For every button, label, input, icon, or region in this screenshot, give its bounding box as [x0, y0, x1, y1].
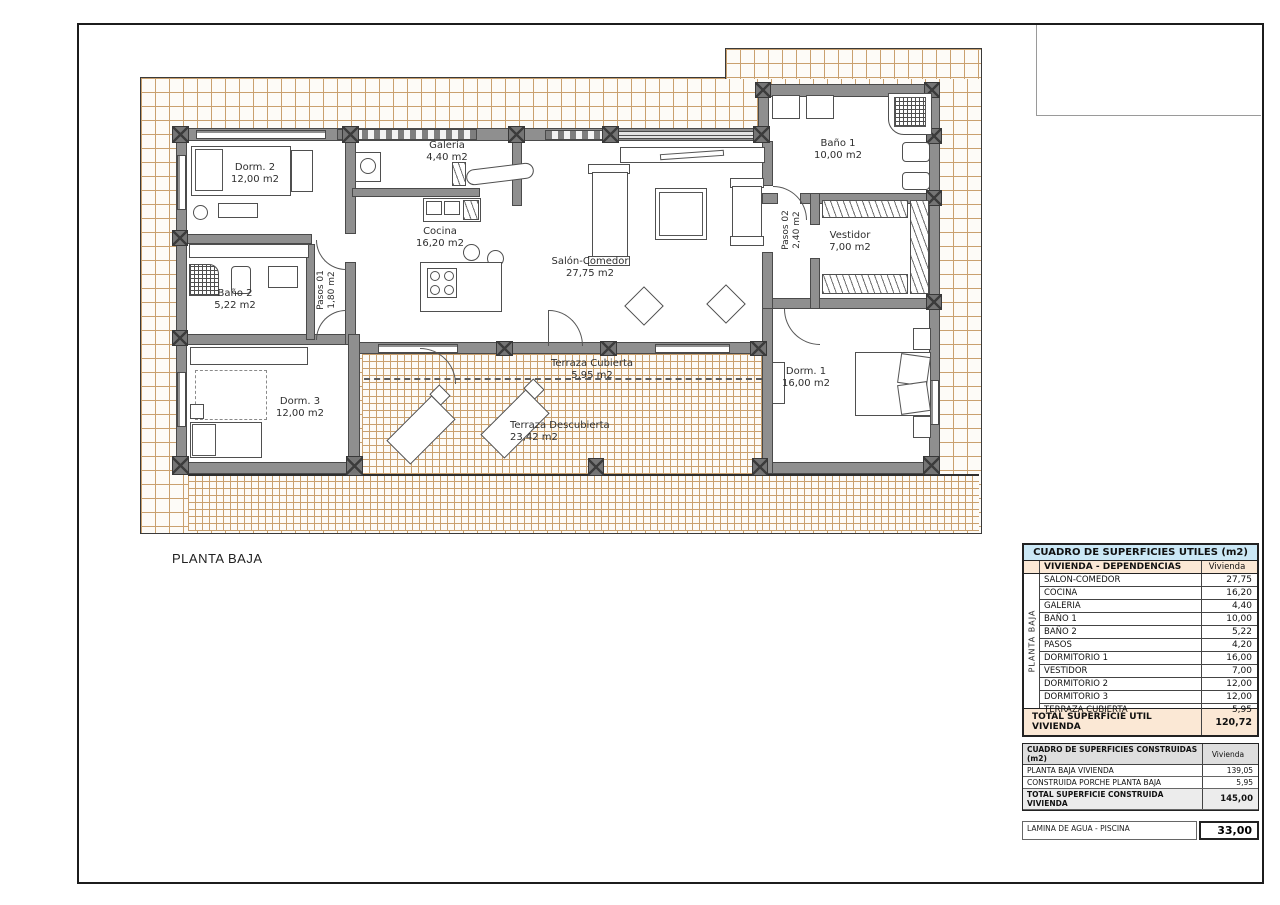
piscina-label: LAMINA DE AGUA - PISCINA [1022, 821, 1197, 840]
row-value: 16,20 [1201, 587, 1257, 599]
row-label: VESTIDOR [1040, 665, 1201, 677]
room-area: 23,42 m2 [510, 432, 558, 443]
room-name: Salón-Comedor [552, 256, 629, 267]
banyo2-counter [189, 244, 309, 258]
room-area: 5,22 m2 [214, 300, 256, 311]
dorm1-pillow [898, 382, 930, 414]
table-row: PASOS4,20 [1040, 639, 1257, 652]
pillar [600, 341, 617, 356]
table-row: CONSTRUIDA PORCHE PLANTA BAJA5,95 [1023, 777, 1258, 789]
room-name: Galería [429, 140, 465, 151]
plot-grid-step [725, 48, 982, 79]
dorm3-wardrobe [190, 347, 308, 365]
group-strip: PLANTA BAJA [1024, 574, 1040, 708]
room-name: Pasos 02 [781, 210, 791, 250]
surface-tables: CUADRO DE SUPERFICIES UTILES (m2) VIVIEN… [1022, 543, 1259, 840]
pillar [508, 126, 525, 143]
table-superficies-construidas: CUADRO DE SUPERFICIES CONSTRUIDAS (m2) V… [1022, 743, 1259, 811]
armchair [732, 186, 762, 238]
room-area: 5,95 m2 [571, 370, 613, 381]
wall [345, 262, 356, 345]
room-label-banyo2: Baño 2 5,22 m2 [185, 288, 285, 312]
row-value: 7,00 [1201, 665, 1257, 677]
kitchen-sink-bowl [444, 201, 460, 215]
table-row: PLANTA BAJA VIVIENDA139,05 [1023, 765, 1258, 777]
table-utiles-body: PLANTA BAJA SALON-COMEDOR27,75 COCINA16,… [1024, 574, 1257, 709]
room-label-dorm2: Dorm. 2 12,00 m2 [205, 162, 305, 186]
table-row: VESTIDOR7,00 [1040, 665, 1257, 678]
dorm1-pillow [898, 354, 930, 386]
table-row: DORMITORIO 116,00 [1040, 652, 1257, 665]
room-area: 7,00 m2 [829, 242, 871, 253]
table-row: BAÑO 25,22 [1040, 626, 1257, 639]
pillar [172, 230, 188, 246]
wall [762, 298, 940, 309]
porch-pillar [752, 458, 768, 476]
room-name: Dorm. 2 [235, 162, 275, 173]
room-area: 2,40 m2 [792, 211, 802, 248]
table-utiles-subheader: VIVIENDA - DEPENDENCIAS Vivienda [1024, 561, 1257, 574]
room-label-galeria: Galería 4,40 m2 [397, 140, 497, 164]
table-construidas-total-row: TOTAL SUPERFICIE CONSTRUIDA VIVIENDA 145… [1023, 789, 1258, 810]
pillar [172, 126, 189, 143]
col-header-vivienda: Vivienda [1202, 744, 1258, 764]
table-construidas-title: CUADRO DE SUPERFICIES CONSTRUIDAS (m2) [1023, 744, 1202, 764]
room-area: 10,00 m2 [814, 150, 862, 161]
pillar [496, 341, 513, 356]
wardrobe [822, 274, 908, 294]
pillar [750, 341, 767, 356]
floor-title: PLANTA BAJA [172, 551, 263, 566]
row-label: PASOS [1040, 639, 1201, 651]
room-name: Baño 2 [218, 288, 253, 299]
sliding-door-salon [617, 131, 755, 139]
table-row: GALERIA4,40 [1040, 600, 1257, 613]
wall [810, 258, 820, 309]
banyo1-bidet [902, 172, 930, 190]
row-value: 139,05 [1202, 765, 1258, 776]
floor-plan-sheet: Dorm. 2 12,00 m2 Galería 4,40 m2 Cocina … [0, 0, 1280, 905]
table-utiles-rows: SALON-COMEDOR27,75 COCINA16,20 GALERIA4,… [1040, 574, 1257, 708]
stove-burner [430, 271, 440, 281]
total-label: TOTAL SUPERFICIE CONSTRUIDA VIVIENDA [1023, 789, 1202, 809]
table-row: COCINA16,20 [1040, 587, 1257, 600]
room-label-terraza-cubierta: Terraza Cubierta 5,95 m2 [517, 358, 667, 382]
room-label-vestidor: Vestidor 7,00 m2 [800, 230, 900, 254]
pillar [602, 126, 619, 143]
room-name: Pasos 01 [316, 270, 326, 310]
pillar [172, 330, 188, 346]
row-value: 5,95 [1202, 777, 1258, 788]
room-label-pasos02: Pasos 02 2,40 m2 [781, 200, 803, 260]
row-value: 5,22 [1201, 626, 1257, 638]
room-label-terraza-descubierta: Terraza Descubierta 23,42 m2 [510, 420, 690, 444]
room-name: Baño 1 [821, 138, 856, 149]
pillar [172, 456, 189, 475]
porch-pillar [588, 458, 604, 476]
room-name: Vestidor [830, 230, 871, 241]
room-name: Terraza Cubierta [551, 358, 633, 369]
window-dorm3-side [177, 372, 186, 427]
dorm1-nightstand [913, 328, 931, 350]
pillar [755, 82, 771, 98]
corner-cell [1024, 561, 1040, 573]
table-piscina: LAMINA DE AGUA - PISCINA 33,00 [1022, 821, 1259, 840]
wall [762, 252, 773, 309]
table-construidas-header: CUADRO DE SUPERFICIES CONSTRUIDAS (m2) V… [1023, 744, 1258, 765]
total-value: 120,72 [1201, 709, 1257, 735]
wall [306, 244, 315, 340]
table-row: SALON-COMEDOR27,75 [1040, 574, 1257, 587]
wall [176, 462, 362, 474]
room-area: 12,00 m2 [231, 174, 279, 185]
table-row: DORMITORIO 212,00 [1040, 678, 1257, 691]
stove-burner [430, 285, 440, 295]
banyo2-sink [268, 266, 298, 288]
table-row: DORMITORIO 312,00 [1040, 691, 1257, 704]
room-name: Cocina [423, 226, 457, 237]
banyo1-sink [806, 95, 834, 119]
row-label: DORMITORIO 3 [1040, 691, 1201, 703]
row-value: 10,00 [1201, 613, 1257, 625]
porch-paving [188, 474, 979, 531]
wall [810, 193, 820, 225]
piscina-value: 33,00 [1199, 821, 1259, 840]
table-utiles-total-row: TOTAL SUPERFICIE UTIL VIVIENDA 120,72 [1024, 709, 1257, 735]
porch-pillar [346, 456, 363, 476]
dorm1-nightstand [913, 416, 931, 438]
kitchen-drainer [463, 200, 479, 220]
room-name: Dorm. 1 [786, 366, 826, 377]
room-area: 16,20 m2 [416, 238, 464, 249]
row-value: 12,00 [1201, 691, 1257, 703]
row-label: DORMITORIO 1 [1040, 652, 1201, 664]
room-area: 27,75 m2 [566, 268, 614, 279]
banyo1-shower-tray [894, 97, 926, 127]
col-header-vivienda: Vivienda [1201, 561, 1257, 573]
dorm2-stool [193, 205, 208, 220]
room-name: Terraza Descubierta [510, 420, 610, 431]
wardrobe [822, 200, 908, 218]
row-label: GALERIA [1040, 600, 1201, 612]
wardrobe [910, 200, 929, 294]
room-label-banyo1: Baño 1 10,00 m2 [788, 138, 888, 162]
porch-pillar [923, 456, 940, 475]
room-label-salon: Salón-Comedor 27,75 m2 [515, 256, 665, 280]
window-dorm2-side [177, 155, 186, 210]
row-label: CONSTRUIDA PORCHE PLANTA BAJA [1023, 777, 1202, 788]
wall [176, 234, 312, 244]
dorm2-desk [218, 203, 258, 218]
window-dorm1-side [930, 380, 939, 425]
row-value: 16,00 [1201, 652, 1257, 664]
row-value: 12,00 [1201, 678, 1257, 690]
row-value: 27,75 [1201, 574, 1257, 586]
stove-burner [444, 285, 454, 295]
window-dorm2 [196, 130, 326, 139]
wall [762, 462, 940, 474]
row-label: COCINA [1040, 587, 1201, 599]
row-label: PLANTA BAJA VIVIENDA [1023, 765, 1202, 776]
group-strip-label: PLANTA BAJA [1027, 610, 1036, 673]
row-label: BAÑO 2 [1040, 626, 1201, 638]
dorm3-nightstand [190, 404, 204, 419]
title-block-empty [1036, 25, 1261, 116]
pillar [753, 126, 770, 143]
kitchen-sink-bowl [426, 201, 442, 215]
total-value: 145,00 [1202, 789, 1258, 809]
ironing-board-rack [452, 162, 466, 186]
row-value: 4,20 [1201, 639, 1257, 651]
room-area: 1,80 m2 [327, 271, 337, 308]
room-area: 16,00 m2 [782, 378, 830, 389]
row-value: 4,40 [1201, 600, 1257, 612]
col-header-dependencias: VIVIENDA - DEPENDENCIAS [1040, 561, 1201, 573]
room-name: Dorm. 3 [280, 396, 320, 407]
stove-burner [444, 271, 454, 281]
room-label-dorm1: Dorm. 1 16,00 m2 [756, 366, 856, 390]
room-label-dorm3: Dorm. 3 12,00 m2 [250, 396, 350, 420]
window-salon [545, 130, 605, 140]
pillar [342, 126, 359, 143]
banyo1-sink [772, 95, 800, 119]
armchair-armrest [730, 236, 764, 246]
window-porch-left [378, 344, 458, 353]
table-row: BAÑO 110,00 [1040, 613, 1257, 626]
row-label: DORMITORIO 2 [1040, 678, 1201, 690]
pillar [926, 294, 942, 310]
room-area: 12,00 m2 [276, 408, 324, 419]
porch-edge-line [188, 474, 979, 476]
table-superficies-utiles: CUADRO DE SUPERFICIES UTILES (m2) VIVIEN… [1022, 543, 1259, 737]
wall [352, 188, 480, 197]
coffee-table [655, 188, 707, 240]
washing-machine-drum [360, 158, 376, 174]
dorm3-pillow [193, 425, 215, 455]
banyo1-toilet [902, 142, 930, 162]
row-label: SALON-COMEDOR [1040, 574, 1201, 586]
room-area: 4,40 m2 [426, 152, 468, 163]
window-porch-right [655, 344, 730, 353]
sofa [592, 172, 628, 258]
room-label-cocina: Cocina 16,20 m2 [390, 226, 490, 250]
table-utiles-title: CUADRO DE SUPERFICIES UTILES (m2) [1024, 545, 1257, 561]
room-label-pasos01: Pasos 01 1,80 m2 [316, 260, 338, 320]
row-label: BAÑO 1 [1040, 613, 1201, 625]
total-label: TOTAL SUPERFICIE UTIL VIVIENDA [1024, 709, 1201, 735]
